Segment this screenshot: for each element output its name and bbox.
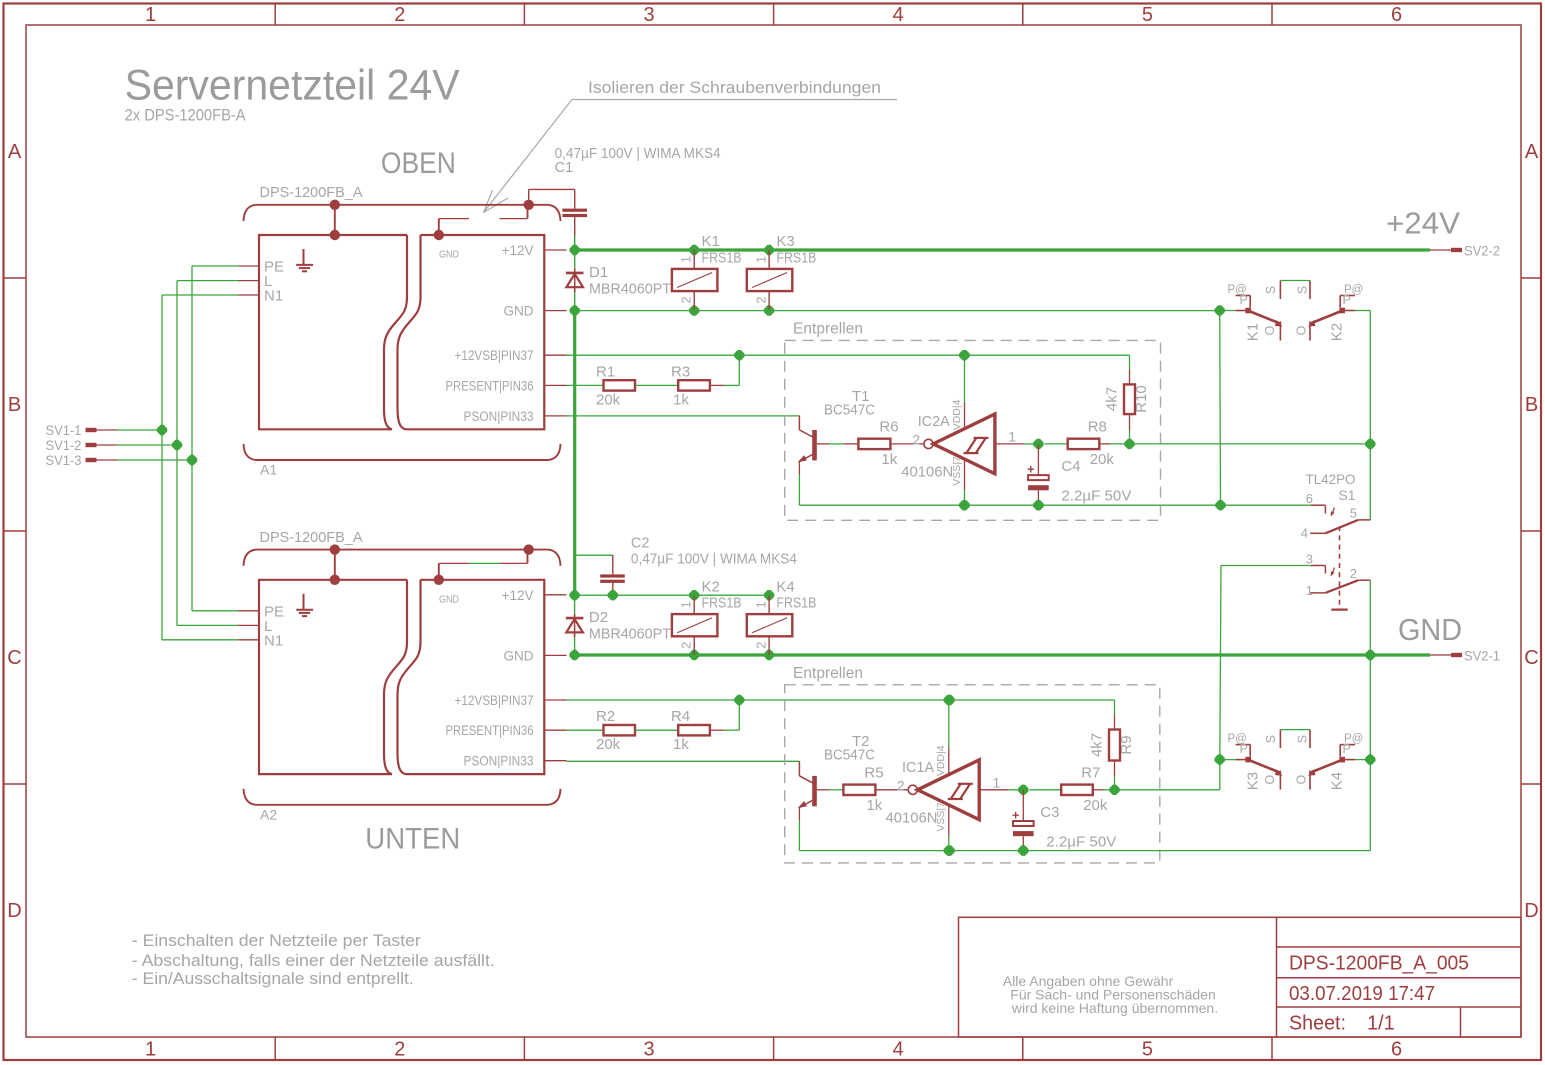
svg-text:VSS|7: VSS|7 [951,456,963,486]
svg-text:SV2-1: SV2-1 [1464,648,1500,663]
svg-text:P: P [1240,742,1248,756]
svg-text:S: S [1295,286,1309,294]
svg-text:4k7: 4k7 [1089,733,1106,757]
svg-text:D1: D1 [589,264,608,281]
svg-text:1k: 1k [673,736,689,753]
svg-text:5: 5 [1142,1039,1153,1061]
svg-text:C3: C3 [1040,804,1059,821]
svg-text:P: P [1343,742,1351,756]
svg-text:K2: K2 [1328,323,1345,341]
svg-text:2: 2 [912,431,920,447]
svg-text:R2: R2 [596,708,615,725]
svg-text:MBR4060PT: MBR4060PT [589,626,671,643]
svg-text:- Einschalten der Netzteile pe: - Einschalten der Netzteile per Taster [132,932,422,950]
svg-text:0,47µF 100V | WIMA MKS4: 0,47µF 100V | WIMA MKS4 [631,552,797,568]
svg-text:K4: K4 [1328,772,1345,790]
svg-text:TL42PO: TL42PO [1306,471,1356,487]
svg-text:2: 2 [1350,566,1357,581]
svg-text:K1: K1 [1244,323,1261,341]
svg-text:K4: K4 [776,578,794,595]
svg-text:- Ein/Ausschaltsignale sind en: - Ein/Ausschaltsignale sind entprellt. [132,970,414,988]
svg-text:A1: A1 [260,462,277,478]
svg-text:C: C [7,647,21,669]
svg-text:B: B [8,394,21,416]
svg-text:FRS1B: FRS1B [702,249,742,266]
svg-text:1k: 1k [866,797,882,814]
svg-text:N1: N1 [264,288,283,305]
svg-text:C4: C4 [1061,458,1080,475]
svg-text:O: O [1294,325,1308,335]
svg-text:+12VSB|PIN37: +12VSB|PIN37 [455,348,534,363]
svg-text:2: 2 [754,296,769,303]
svg-text:20k: 20k [596,736,621,753]
svg-text:PRESENT|PIN36: PRESENT|PIN36 [446,378,534,393]
svg-text:R6: R6 [879,418,898,435]
svg-text:GND: GND [439,249,459,261]
svg-text:2: 2 [394,1039,405,1061]
svg-text:2.2µF 50V: 2.2µF 50V [1046,833,1116,850]
svg-text:VSS|7: VSS|7 [935,802,947,832]
svg-text:Isolieren der Schraubenverbind: Isolieren der Schraubenverbindungen [588,79,881,97]
svg-text:C: C [1524,647,1538,669]
svg-text:5: 5 [1350,506,1357,521]
svg-text:GND: GND [1398,612,1462,647]
svg-text:2: 2 [897,777,905,793]
svg-text:wird keine Haftung übernommen.: wird keine Haftung übernommen. [1011,1000,1218,1016]
svg-text:Entprellen: Entprellen [793,320,863,337]
svg-text:Entprellen: Entprellen [793,665,863,682]
svg-text:+: + [1027,463,1034,477]
svg-text:6: 6 [1306,491,1313,506]
svg-text:SV1-2: SV1-2 [46,438,82,453]
svg-text:6: 6 [1391,4,1402,26]
svg-text:S: S [1295,735,1309,743]
svg-text:O: O [1294,774,1308,784]
svg-text:20k: 20k [1083,797,1108,814]
svg-text:5: 5 [1142,4,1153,26]
svg-text:R10: R10 [1133,385,1150,413]
svg-text:4k7: 4k7 [1104,387,1121,411]
svg-text:D: D [1524,900,1538,922]
svg-text:40106N: 40106N [886,809,938,826]
svg-text:N1: N1 [264,632,283,649]
svg-text:C1: C1 [555,160,574,176]
svg-text:S: S [1264,735,1278,743]
svg-text:2: 2 [679,642,694,649]
svg-text:OBEN: OBEN [381,147,456,180]
svg-text:FRS1B: FRS1B [702,595,742,612]
svg-text:C2: C2 [631,536,650,552]
svg-text:3: 3 [643,1039,654,1061]
svg-text:A2: A2 [260,806,277,822]
svg-text:PSON|PIN33: PSON|PIN33 [464,754,534,769]
svg-text:R3: R3 [671,363,690,380]
svg-text:VDD|4: VDD|4 [935,745,947,776]
svg-text:GND: GND [439,593,459,605]
svg-text:SV1-3: SV1-3 [46,453,82,468]
svg-text:K1: K1 [702,233,720,250]
svg-text:B: B [1525,394,1538,416]
svg-text:6: 6 [1391,1039,1402,1061]
svg-text:A: A [1525,141,1539,163]
svg-text:+24V: +24V [1386,206,1460,241]
svg-text:FRS1B: FRS1B [776,249,816,266]
svg-text:BC547C: BC547C [824,402,875,419]
svg-text:P: P [1343,293,1351,307]
svg-text:K3: K3 [1244,772,1261,790]
svg-text:+12V: +12V [502,243,534,258]
svg-text:P: P [1240,293,1248,307]
svg-text:Servernetzteil 24V: Servernetzteil 24V [125,62,460,110]
svg-text:20k: 20k [1090,451,1115,468]
svg-text:R9: R9 [1118,735,1135,754]
svg-text:1: 1 [145,1039,156,1061]
svg-text:40106N: 40106N [901,463,953,480]
svg-text:R1: R1 [596,363,615,380]
svg-text:GND: GND [504,304,534,319]
svg-text:A: A [8,141,22,163]
svg-text:K2: K2 [702,578,720,595]
svg-text:S1: S1 [1338,487,1355,503]
svg-text:R7: R7 [1081,764,1100,781]
svg-text:1: 1 [679,601,694,608]
svg-text:1: 1 [145,4,156,26]
svg-text:SV2-2: SV2-2 [1464,243,1500,258]
svg-text:D2: D2 [589,609,608,626]
svg-text:+12V: +12V [502,588,534,603]
svg-text:+: + [1012,809,1019,823]
svg-text:PRESENT|PIN36: PRESENT|PIN36 [446,723,534,738]
svg-text:1: 1 [754,256,769,263]
svg-text:2: 2 [394,4,405,26]
svg-text:03.07.2019 17:47: 03.07.2019 17:47 [1289,983,1435,1005]
svg-text:Sheet:: Sheet: [1289,1013,1346,1035]
svg-text:UNTEN: UNTEN [365,823,460,856]
svg-text:3: 3 [643,4,654,26]
svg-text:PSON|PIN33: PSON|PIN33 [464,409,534,424]
svg-text:BC547C: BC547C [824,747,875,764]
svg-text:1k: 1k [673,391,689,408]
svg-text:O: O [1263,325,1277,335]
svg-text:4: 4 [893,4,904,26]
svg-text:1: 1 [1008,428,1016,444]
svg-text:1/1: 1/1 [1367,1013,1395,1035]
svg-text:K3: K3 [776,233,794,250]
svg-text:1: 1 [679,256,694,263]
svg-text:1: 1 [993,774,1001,790]
svg-text:4: 4 [893,1039,904,1061]
svg-text:SV1-1: SV1-1 [46,423,82,438]
svg-text:D: D [7,900,21,922]
svg-text:R5: R5 [864,764,883,781]
svg-text:3: 3 [1306,552,1313,567]
svg-text:IC2A: IC2A [918,413,950,430]
svg-text:2: 2 [679,296,694,303]
svg-text:- Abschaltung, falls einer der: - Abschaltung, falls einer der Netzteile… [132,952,495,970]
svg-text:R4: R4 [671,708,690,725]
svg-text:S: S [1264,286,1278,294]
svg-text:VDD|4: VDD|4 [951,399,963,430]
svg-text:+12VSB|PIN37: +12VSB|PIN37 [455,693,534,708]
svg-text:2: 2 [754,642,769,649]
svg-text:DPS-1200FB_A: DPS-1200FB_A [260,529,363,546]
svg-text:4: 4 [1301,526,1308,541]
svg-text:2x DPS-1200FB-A: 2x DPS-1200FB-A [125,107,246,125]
svg-text:1: 1 [1306,583,1313,598]
svg-text:GND: GND [504,648,534,663]
svg-text:IC1A: IC1A [902,759,934,776]
svg-text:DPS-1200FB_A: DPS-1200FB_A [260,184,363,201]
svg-text:FRS1B: FRS1B [776,595,816,612]
svg-text:2.2µF 50V: 2.2µF 50V [1061,487,1131,504]
svg-text:20k: 20k [596,391,621,408]
svg-text:MBR4060PT: MBR4060PT [589,281,671,298]
svg-text:0,47µF 100V | WIMA MKS4: 0,47µF 100V | WIMA MKS4 [555,146,721,162]
svg-text:1k: 1k [881,451,897,468]
svg-text:R8: R8 [1088,418,1107,435]
svg-text:O: O [1263,774,1277,784]
svg-text:1: 1 [754,601,769,608]
svg-text:DPS-1200FB_A_005: DPS-1200FB_A_005 [1289,953,1469,975]
